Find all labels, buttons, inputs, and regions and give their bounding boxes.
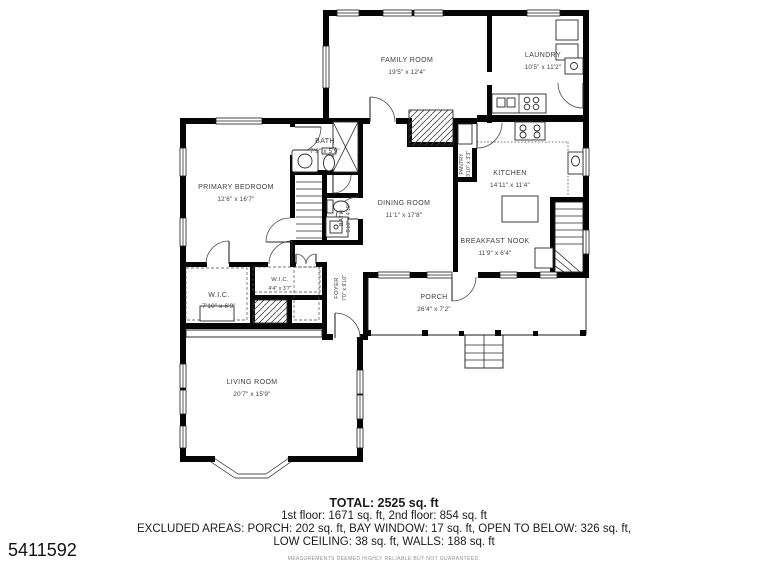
floor-sqft: 1st floor: 1671 sq. ft, 2nd floor: 854 s… — [0, 510, 768, 523]
shower-icon — [333, 122, 358, 172]
window-icon — [357, 428, 363, 448]
window-icon — [180, 390, 186, 414]
room-label-kitchen: KITCHEN — [493, 170, 527, 177]
room-label-breakfast-nook: BREAKFAST NOOK — [460, 238, 529, 245]
door-icon — [477, 123, 502, 148]
stairs-center — [296, 182, 322, 238]
window-icon — [180, 426, 186, 448]
low-ceiling-band — [186, 330, 322, 337]
disclaimer-text: MEASUREMENTS DEEMED HIGHLY RELIABLE BUT … — [0, 556, 768, 562]
window-icon — [540, 272, 557, 278]
window-icon — [383, 10, 412, 16]
room-label-family-room: FAMILY ROOM — [381, 57, 433, 64]
room-label-foyer: FOYER — [334, 277, 340, 298]
window-icon — [500, 272, 517, 278]
listing-id: 5411592 — [8, 540, 77, 561]
room-label-porch: PORCH — [420, 294, 447, 301]
room-dims-kitchen: 14'11" x 11'4" — [490, 182, 530, 189]
room-dims-wic-1: 7'10" x 6'9" — [202, 303, 235, 310]
room-dims-family-room: 19'5" x 12'4" — [388, 69, 425, 76]
room-dims-dining-room: 11'1" x 17'8" — [386, 212, 423, 219]
window-icon — [378, 272, 410, 278]
room-label-wic-1: W.I.C. — [208, 292, 229, 299]
porch-steps — [465, 335, 503, 368]
utility-sink-icon — [565, 58, 583, 74]
window-icon — [180, 148, 186, 176]
window-icon — [414, 10, 443, 16]
door-icon — [370, 97, 395, 122]
door-icon — [558, 83, 583, 108]
door-icon — [296, 254, 306, 264]
window-icon — [583, 148, 589, 176]
room-dims-wic-2: 4'4" x 3'7" — [268, 286, 291, 292]
room-dims-pantry: 3'10" x 3'3" — [466, 151, 472, 177]
door-icon — [306, 254, 316, 264]
room-dims-laundry: 10'5" x 11'2" — [525, 64, 562, 71]
window-icon — [216, 118, 262, 124]
stairs-upper — [555, 202, 583, 272]
room-dims-primary-bedroom: 12'6" x 16'7" — [217, 196, 254, 203]
door-icon — [266, 218, 290, 242]
door-icon — [335, 313, 360, 338]
room-label-bath-2: BATH — [339, 210, 345, 226]
room-label-laundry: LAUNDRY — [525, 52, 561, 59]
excluded-areas-line2: LOW CEILING: 38 sq. ft, WALLS: 188 sq. f… — [0, 536, 768, 549]
bay-window — [211, 458, 292, 478]
total-sqft: TOTAL: 2525 sq. ft — [0, 497, 768, 510]
room-dims-bath-2: 5'10" x 4'10" — [346, 203, 352, 232]
window-icon — [337, 10, 359, 16]
room-label-dining-room: DINING ROOM — [378, 200, 431, 207]
low-ceiling-hatch — [253, 300, 287, 323]
floor-plan-drawing: FAMILY ROOM 19'5" x 12'4" LAUNDRY 10'5" … — [0, 0, 768, 576]
room-label-wic-2: W.I.C. — [271, 277, 289, 283]
open-to-below-hatch — [409, 110, 453, 145]
door-icon — [269, 241, 292, 264]
floor-plan-page: FAMILY ROOM 19'5" x 12'4" LAUNDRY 10'5" … — [0, 0, 768, 576]
washer-dryer-icon — [492, 94, 546, 113]
excluded-areas-line1: EXCLUDED AREAS: PORCH: 202 sq. ft, BAY W… — [0, 523, 768, 536]
window-icon — [180, 364, 186, 388]
door-icon — [206, 241, 229, 264]
room-label-living-room: LIVING ROOM — [226, 379, 277, 386]
kitchen-sink-icon — [568, 152, 583, 174]
window-icon — [583, 230, 589, 254]
room-label-pantry: PANTRY — [459, 153, 465, 174]
room-dims-bath-1: 7'9" x 5'9" — [310, 148, 340, 155]
window-icon — [357, 395, 363, 419]
sqft-summary: TOTAL: 2525 sq. ft 1st floor: 1671 sq. f… — [0, 497, 768, 562]
room-dims-foyer: 7'0" x 9'10" — [342, 275, 348, 301]
room-dims-breakfast-nook: 11'9" x 6'4" — [479, 250, 512, 257]
room-dims-porch: 26'4" x 7'2" — [417, 306, 450, 313]
window-icon — [180, 218, 186, 246]
window-icon — [323, 46, 329, 88]
door-icon — [452, 277, 476, 301]
room-label-bath-1: BATH — [315, 138, 335, 145]
stove-icon — [515, 122, 545, 140]
window-icon — [527, 10, 560, 16]
window-icon — [427, 272, 452, 278]
door-icon — [333, 175, 351, 193]
porch-outline — [365, 278, 586, 336]
room-label-primary-bedroom: PRIMARY BEDROOM — [198, 184, 274, 191]
room-dims-living-room: 20'7" x 15'9" — [233, 391, 270, 398]
window-icon — [357, 370, 363, 394]
